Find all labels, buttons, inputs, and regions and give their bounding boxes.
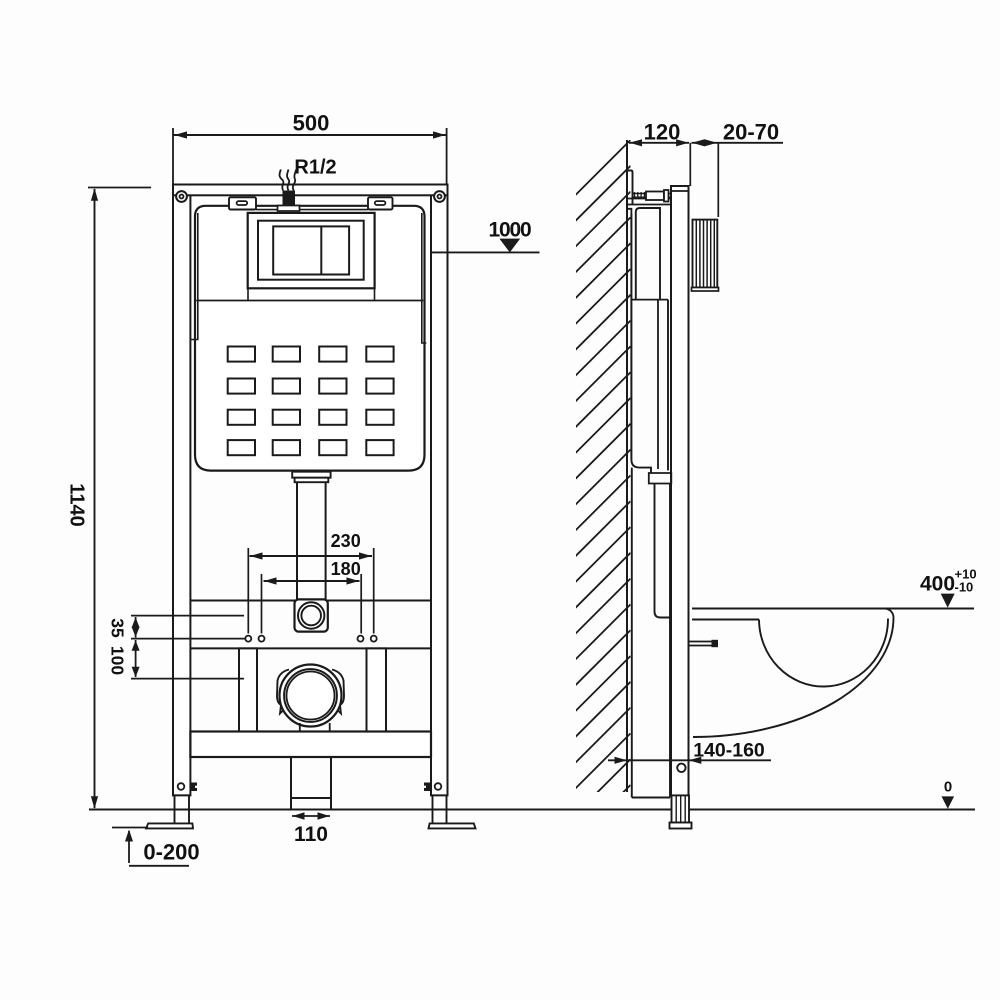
svg-text:1000: 1000 (489, 219, 531, 242)
svg-text:100: 100 (108, 646, 128, 675)
svg-text:180: 180 (331, 559, 361, 579)
svg-text:1140: 1140 (66, 483, 88, 526)
svg-text:35: 35 (108, 618, 128, 638)
svg-text:20-70: 20-70 (723, 120, 779, 145)
svg-text:0-200: 0-200 (143, 840, 199, 865)
svg-text:230: 230 (331, 531, 361, 551)
svg-text:110: 110 (294, 823, 328, 846)
svg-text:120: 120 (644, 120, 681, 145)
svg-text:500: 500 (293, 111, 330, 136)
svg-text:140-160: 140-160 (693, 740, 765, 762)
svg-text:R1/2: R1/2 (294, 157, 336, 179)
svg-text:-10: -10 (955, 580, 974, 595)
svg-text:0: 0 (944, 779, 952, 796)
svg-text:400: 400 (920, 573, 955, 596)
